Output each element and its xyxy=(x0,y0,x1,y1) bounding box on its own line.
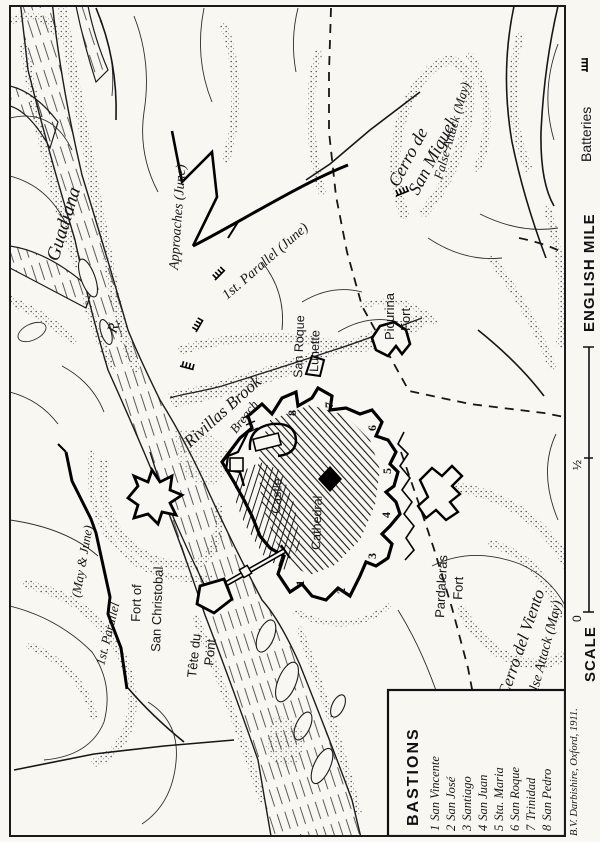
legend-item-name: Sta. Maria xyxy=(492,767,506,820)
siege-map-canvas: 1 2 3 4 5 6 7 8 Guadiana R. Approaches (… xyxy=(0,0,600,842)
legend-item-8: 8San Pedro xyxy=(540,769,554,831)
scale-half: ½ xyxy=(570,460,584,470)
legend-item-name: Santiago xyxy=(460,776,474,820)
label-picurina-line1: Picurina xyxy=(382,292,397,340)
legend-item-num: 6 xyxy=(508,824,522,831)
bastions-legend: BASTIONS 1San Vincente 2San José 3Santia… xyxy=(388,690,565,836)
label-fort-of: Fort of xyxy=(128,584,144,622)
legend-item-num: 3 xyxy=(460,825,474,832)
legend-title: BASTIONS xyxy=(405,727,422,826)
legend-item-name: San José xyxy=(444,776,458,821)
label-san-roque-line2: Lunette xyxy=(307,330,322,372)
label-scale: SCALE xyxy=(582,626,599,682)
label-san-roque-line1: San Roque xyxy=(291,315,307,378)
bastion-marker-5: 5 xyxy=(380,468,394,474)
legend-item-name: San Pedro xyxy=(540,769,554,821)
legend-item-name: San Roque xyxy=(508,766,522,820)
bastion-marker-7: 7 xyxy=(322,402,336,408)
legend-item-name: San Vincente xyxy=(428,756,442,821)
bastion-marker-8: 8 xyxy=(285,410,299,416)
legend-item-num: 1 xyxy=(428,825,442,831)
label-castle: Castle xyxy=(269,478,285,514)
attribution: B.V. Darbishire, Oxford, 1911. xyxy=(569,708,580,836)
bastion-marker-1: 1 xyxy=(293,580,307,586)
bastion-marker-6: 6 xyxy=(365,425,379,431)
legend-item-name: Trinidad xyxy=(524,777,538,821)
legend-item-1: 1San Vincente xyxy=(428,756,442,831)
scale-zero: 0 xyxy=(570,615,584,622)
label-picurina-line2: Fort xyxy=(398,308,413,332)
label-san-christobal: San Christobal xyxy=(148,566,166,652)
legend-item-name: San Juan xyxy=(476,775,490,821)
legend-item-5: 5Sta. Maria xyxy=(492,767,506,831)
label-english-mile: ENGLISH MILE xyxy=(581,213,598,332)
legend-item-num: 2 xyxy=(444,825,458,831)
legend-item-6: 6San Roque xyxy=(508,766,522,831)
legend-item-num: 4 xyxy=(476,825,490,831)
bastion-marker-4: 4 xyxy=(379,512,393,518)
label-pont: Pont xyxy=(201,638,219,667)
label-batteries: Batteries xyxy=(578,107,594,162)
label-pardaleras-fort: Fort xyxy=(450,576,466,600)
bastion-marker-2: 2 xyxy=(334,588,348,594)
label-cathedral: Cathedral xyxy=(309,495,325,550)
legend-item-num: 8 xyxy=(540,824,554,831)
bastion-marker-3: 3 xyxy=(365,553,379,559)
legend-item-num: 7 xyxy=(524,824,538,831)
legend-item-num: 5 xyxy=(492,825,506,831)
